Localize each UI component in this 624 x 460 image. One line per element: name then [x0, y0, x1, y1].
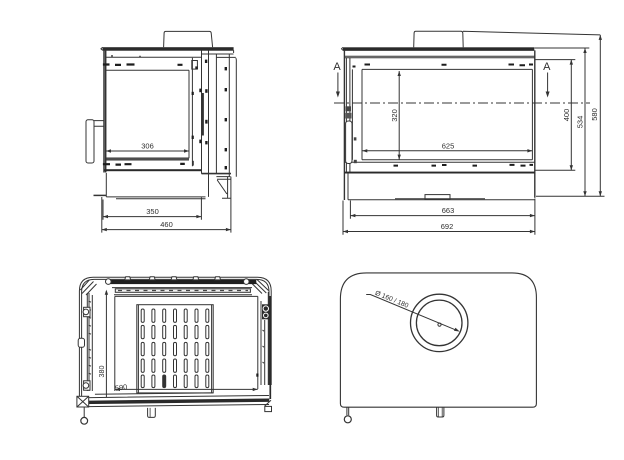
svg-text:590: 590: [114, 382, 127, 393]
svg-text:A: A: [333, 61, 341, 73]
svg-text:625: 625: [442, 141, 455, 150]
svg-text:692: 692: [441, 222, 454, 231]
svg-text:306: 306: [141, 142, 154, 151]
svg-text:580: 580: [590, 108, 599, 121]
svg-text:534: 534: [575, 116, 584, 129]
svg-text:663: 663: [442, 206, 455, 215]
svg-text:350: 350: [146, 207, 159, 216]
svg-text:460: 460: [160, 220, 173, 229]
svg-text:320: 320: [390, 109, 399, 122]
svg-text:Ø 160 / 180: Ø 160 / 180: [374, 290, 410, 310]
svg-text:A: A: [543, 61, 551, 73]
svg-text:400: 400: [562, 109, 571, 122]
svg-text:380: 380: [97, 366, 106, 378]
